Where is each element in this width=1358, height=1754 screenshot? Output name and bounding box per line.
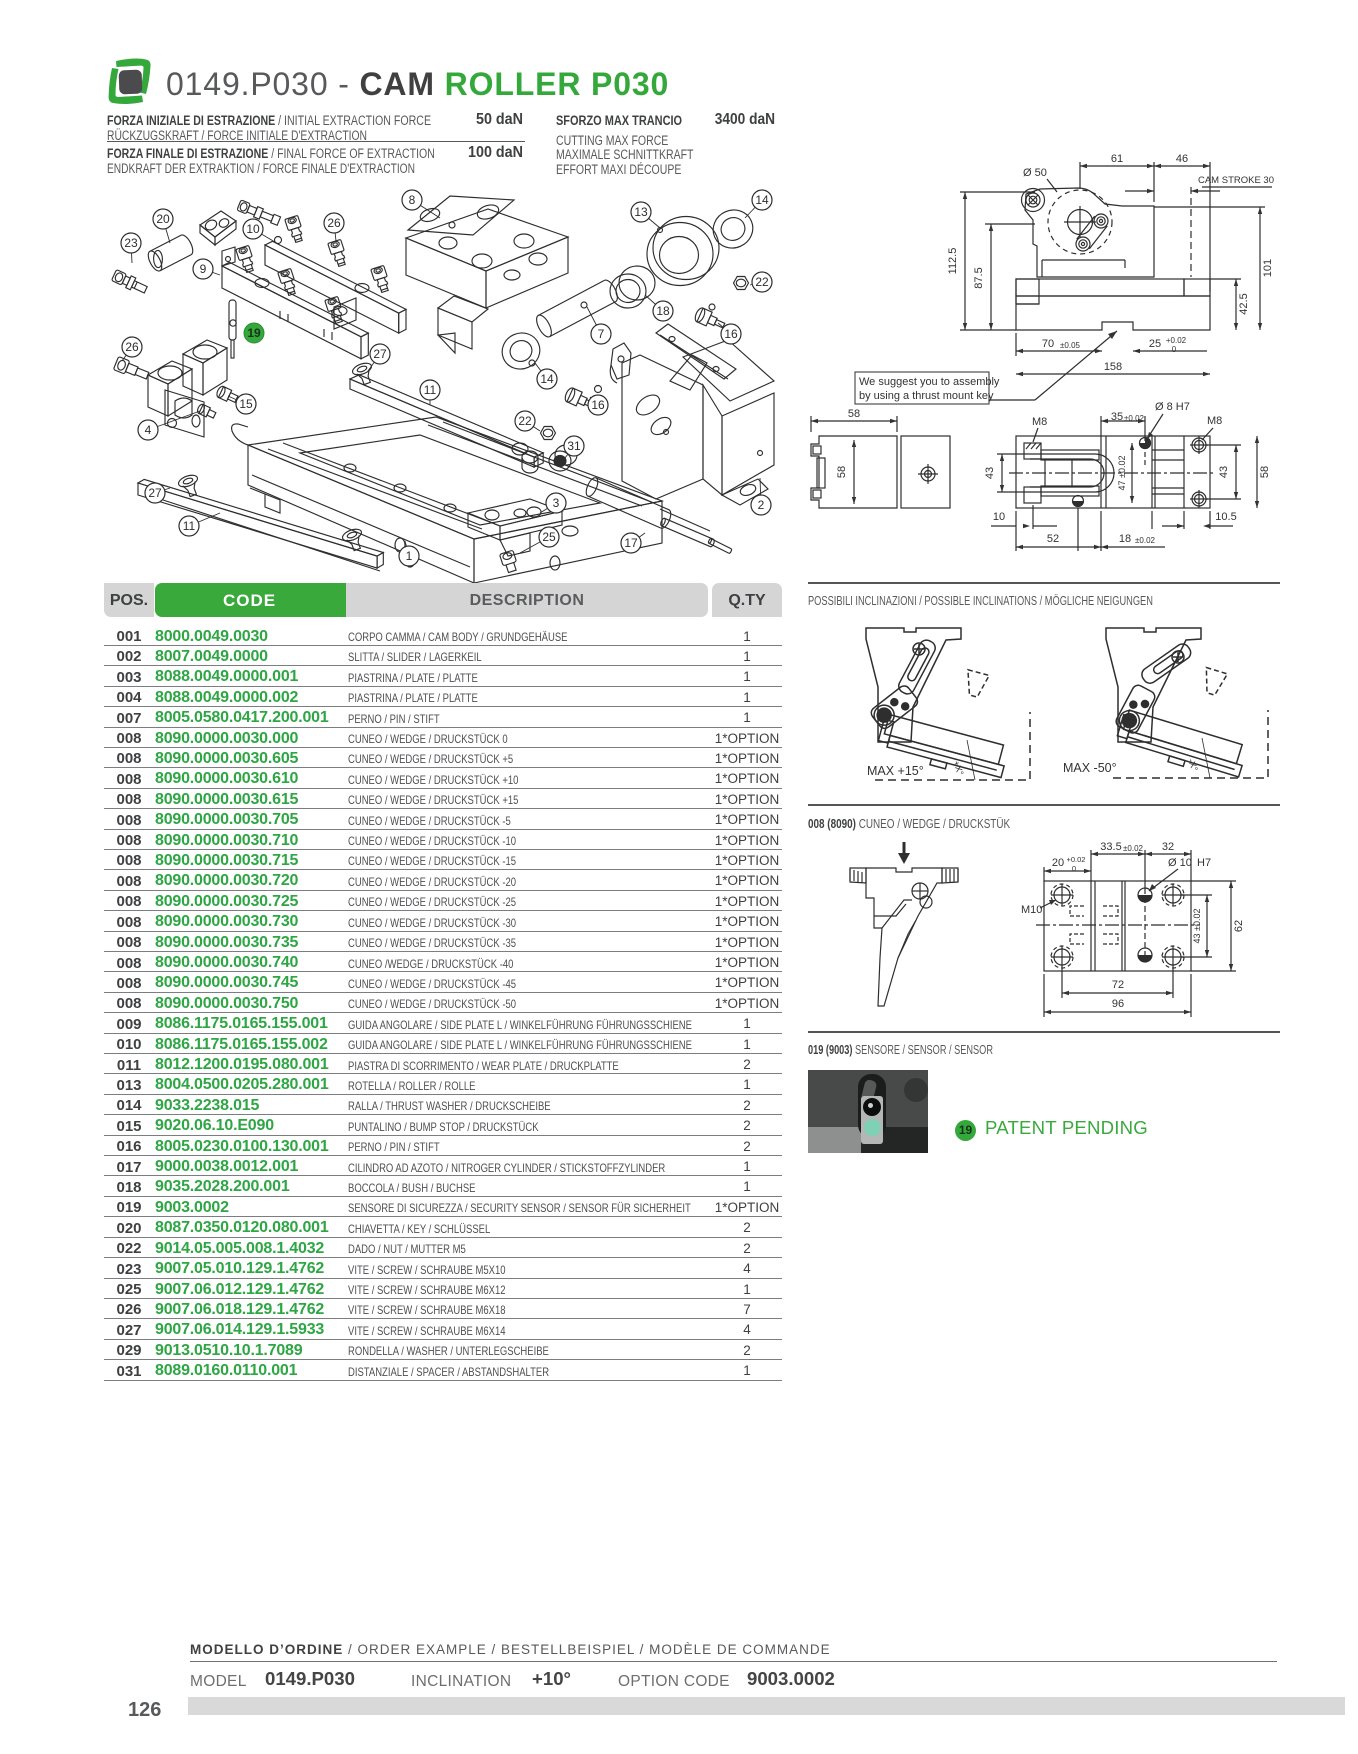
svg-text:H7: H7 bbox=[1197, 857, 1211, 869]
svg-text:8: 8 bbox=[409, 193, 416, 207]
svg-text:±0.02: ±0.02 bbox=[1123, 844, 1144, 853]
svg-text:14: 14 bbox=[540, 372, 554, 386]
svg-text:16: 16 bbox=[724, 327, 738, 341]
svg-text:+0.02: +0.02 bbox=[1067, 855, 1086, 864]
svg-text:10.5: 10.5 bbox=[1215, 511, 1236, 523]
svg-text:52: 52 bbox=[1047, 533, 1059, 545]
svg-text:58: 58 bbox=[1259, 466, 1271, 478]
svg-text:4: 4 bbox=[145, 423, 152, 437]
svg-text:27: 27 bbox=[148, 486, 162, 500]
svg-text:15: 15 bbox=[239, 397, 253, 411]
svg-text:72: 72 bbox=[1112, 979, 1124, 991]
svg-text:Ø 8 H7: Ø 8 H7 bbox=[1155, 401, 1190, 413]
svg-text:MAX -50°: MAX -50° bbox=[1063, 761, 1117, 775]
svg-text:7: 7 bbox=[598, 327, 605, 341]
svg-text:MAX +15°: MAX +15° bbox=[867, 764, 924, 778]
svg-text:42.5: 42.5 bbox=[1238, 293, 1250, 314]
svg-text:112.5: 112.5 bbox=[947, 248, 959, 275]
svg-text:18: 18 bbox=[1119, 533, 1131, 545]
svg-text:46: 46 bbox=[1176, 153, 1188, 165]
svg-text:14: 14 bbox=[755, 193, 769, 207]
svg-text:26: 26 bbox=[125, 340, 139, 354]
svg-text:58: 58 bbox=[836, 466, 848, 478]
svg-text:+0.02: +0.02 bbox=[1166, 336, 1187, 345]
svg-text:11: 11 bbox=[424, 383, 437, 397]
svg-text:87.5: 87.5 bbox=[973, 267, 985, 288]
svg-text:33.5: 33.5 bbox=[1100, 841, 1121, 853]
svg-text:0: 0 bbox=[1172, 345, 1177, 354]
svg-text:26: 26 bbox=[327, 216, 341, 230]
svg-text:CAM STROKE 30: CAM STROKE 30 bbox=[1198, 175, 1274, 186]
svg-text:3: 3 bbox=[553, 496, 560, 510]
svg-text:70: 70 bbox=[1042, 338, 1054, 350]
svg-text:43: 43 bbox=[1218, 466, 1230, 478]
svg-text:158: 158 bbox=[1104, 361, 1122, 373]
svg-text:M8: M8 bbox=[1207, 415, 1222, 427]
svg-text:43: 43 bbox=[984, 467, 996, 479]
svg-text:101: 101 bbox=[1262, 259, 1274, 277]
svg-text:by using a thrust mount key: by using a thrust mount key bbox=[859, 390, 994, 402]
svg-text:17: 17 bbox=[624, 536, 638, 550]
svg-text:96: 96 bbox=[1112, 998, 1124, 1010]
svg-text:±0.02: ±0.02 bbox=[1135, 536, 1156, 545]
svg-text:32: 32 bbox=[1162, 841, 1174, 853]
svg-text:9: 9 bbox=[200, 262, 207, 276]
svg-text:M10: M10 bbox=[1021, 904, 1042, 916]
svg-text:31: 31 bbox=[567, 439, 581, 453]
svg-text:M8: M8 bbox=[1032, 416, 1047, 428]
svg-text:58: 58 bbox=[848, 408, 860, 420]
svg-text:13: 13 bbox=[634, 205, 648, 219]
svg-text:25: 25 bbox=[542, 530, 556, 544]
svg-text:61: 61 bbox=[1111, 153, 1123, 165]
svg-text:20: 20 bbox=[1052, 857, 1064, 869]
svg-text:0: 0 bbox=[1072, 864, 1076, 873]
svg-text:27: 27 bbox=[373, 347, 387, 361]
svg-text:20: 20 bbox=[156, 212, 170, 226]
svg-text:We suggest you to assembly: We suggest you to assembly bbox=[859, 376, 1000, 388]
svg-text:22: 22 bbox=[755, 275, 769, 289]
svg-text:±0.05: ±0.05 bbox=[1060, 341, 1081, 350]
svg-text:10: 10 bbox=[993, 511, 1005, 523]
svg-text:19: 19 bbox=[247, 326, 261, 340]
svg-text:10: 10 bbox=[246, 222, 260, 236]
svg-text:Ø 50: Ø 50 bbox=[1023, 167, 1047, 179]
svg-text:22: 22 bbox=[518, 414, 532, 428]
svg-text:18: 18 bbox=[656, 304, 670, 318]
svg-text:11: 11 bbox=[183, 519, 196, 533]
svg-text:-X°: -X° bbox=[1186, 757, 1200, 773]
svg-text:62: 62 bbox=[1233, 920, 1245, 932]
svg-text:1: 1 bbox=[406, 549, 413, 563]
svg-text:16: 16 bbox=[591, 398, 605, 412]
svg-text:25: 25 bbox=[1149, 338, 1161, 350]
svg-text:23: 23 bbox=[124, 236, 138, 250]
svg-text:43 ±0.02: 43 ±0.02 bbox=[1192, 909, 1202, 944]
svg-text:2: 2 bbox=[758, 498, 765, 512]
svg-text:47 ±0.02: 47 ±0.02 bbox=[1117, 456, 1127, 491]
svg-text:Ø 10: Ø 10 bbox=[1168, 857, 1192, 869]
